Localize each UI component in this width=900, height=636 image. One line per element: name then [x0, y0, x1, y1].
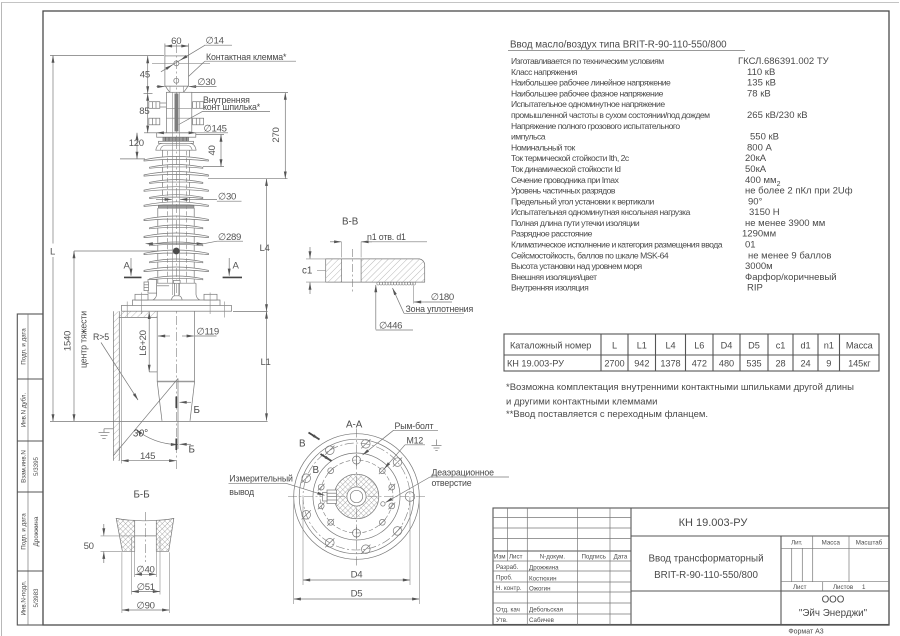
svg-text:промышленной частоты в сухом с: промышленной частоты в сухом состоянии/п…: [511, 110, 710, 120]
svg-text:L: L: [612, 341, 617, 351]
svg-text:R>5: R>5: [93, 332, 109, 342]
svg-text:3000м: 3000м: [745, 261, 773, 272]
svg-text:А-А: А-А: [346, 420, 363, 431]
svg-text:Ток динамической стойкости Id: Ток динамической стойкости Id: [511, 164, 621, 174]
svg-text:Изм: Изм: [494, 554, 506, 561]
svg-text:Изготавливается по техническим: Изготавливается по техническим условиям: [511, 56, 664, 66]
svg-text:Испытательное одноминутное нап: Испытательное одноминутное напряжение: [511, 99, 665, 109]
svg-text:5/3983: 5/3983: [33, 588, 40, 607]
svg-text:Высота установки над уровнем м: Высота установки над уровнем моря: [511, 261, 642, 271]
svg-text:50кА: 50кА: [745, 164, 767, 175]
svg-text:1: 1: [862, 584, 866, 591]
svg-text:∅119: ∅119: [197, 327, 219, 338]
svg-text:78 кВ: 78 кВ: [747, 88, 771, 99]
svg-text:Подп. и дата: Подп. и дата: [21, 513, 28, 550]
svg-text:L4: L4: [665, 341, 675, 351]
svg-text:*Возможна комплектация внутрен: *Возможна комплектация внутренними конта…: [506, 382, 854, 393]
svg-text:1290мм: 1290мм: [742, 229, 776, 240]
svg-text:Испытательная одноминутная кнс: Испытательная одноминутная кнсольная наг…: [511, 207, 691, 217]
svg-text:Формат А3: Формат А3: [788, 629, 823, 636]
svg-text:135 кВ: 135 кВ: [747, 78, 776, 89]
svg-text:∅90: ∅90: [137, 600, 155, 611]
svg-text:отверстие: отверстие: [432, 478, 472, 488]
svg-text:535: 535: [746, 359, 761, 369]
svg-text:1378: 1378: [660, 359, 680, 369]
svg-text:D5: D5: [748, 341, 760, 351]
svg-text:BRIT-R-90-110-550/800: BRIT-R-90-110-550/800: [654, 570, 758, 581]
svg-text:Фарфор/коричневый: Фарфор/коричневый: [745, 272, 837, 283]
svg-text:9: 9: [826, 359, 831, 369]
svg-text:28: 28: [775, 359, 785, 369]
svg-text:Климатическое исполнение и кат: Климатическое исполнение и категория раз…: [511, 240, 723, 250]
svg-text:Б: Б: [194, 405, 200, 416]
svg-text:∅40: ∅40: [136, 565, 154, 576]
svg-text:45: 45: [140, 70, 150, 81]
svg-text:L4: L4: [260, 243, 271, 254]
svg-text:не более 2 пКл при 2Uф: не более 2 пКл при 2Uф: [745, 186, 853, 197]
svg-text:145: 145: [140, 451, 155, 462]
svg-text:Лит.: Лит.: [791, 540, 803, 547]
svg-text:Инв.N-подл.: Инв.N-подл.: [21, 580, 28, 615]
svg-text:550 кВ: 550 кВ: [750, 132, 779, 143]
svg-text:Зона уплотнения: Зона уплотнения: [406, 304, 474, 314]
svg-text:Разраб.: Разраб.: [496, 564, 519, 571]
svg-text:942: 942: [634, 359, 649, 369]
svg-text:Взам.инв.N: Взам.инв.N: [21, 450, 28, 483]
svg-text:Полная длина пути утечки изоля: Полная длина пути утечки изоляции: [511, 218, 640, 228]
svg-text:01: 01: [745, 240, 756, 251]
svg-text:Наибольшее рабочее фазное напр: Наибольшее рабочее фазное напряжение: [511, 88, 664, 98]
svg-text:d1: d1: [800, 341, 810, 351]
svg-text:и другими контактными клеммами: и другими контактными клеммами: [506, 397, 657, 408]
svg-text:Класс напряжения: Класс напряжения: [511, 67, 578, 77]
svg-text:Контактная клемма*: Контактная клемма*: [206, 52, 287, 62]
svg-text:Дата: Дата: [614, 554, 628, 561]
svg-text:RIP: RIP: [747, 283, 763, 294]
svg-text:Масса: Масса: [822, 540, 841, 547]
svg-text:Сечение проводника при Imax: Сечение проводника при Imax: [511, 175, 620, 185]
svg-text:М12: М12: [407, 435, 424, 445]
svg-text:Масса: Масса: [846, 341, 874, 351]
svg-text:L1: L1: [261, 357, 271, 368]
svg-text:**Ввод поставляется с переход: **Ввод поставляется с переходным фланцем…: [506, 409, 708, 420]
svg-text:центр тяжести: центр тяжести: [79, 311, 89, 368]
svg-text:Масштаб: Масштаб: [856, 540, 883, 547]
svg-text:120: 120: [129, 138, 144, 149]
svg-text:480: 480: [719, 359, 734, 369]
svg-text:A: A: [124, 261, 131, 272]
svg-text:Б: Б: [189, 445, 195, 456]
svg-text:Разрядное расстояние: Разрядное расстояние: [511, 229, 593, 239]
svg-text:n1: n1: [824, 341, 834, 351]
svg-text:D4: D4: [721, 341, 733, 351]
svg-text:В: В: [313, 465, 320, 476]
svg-text:не менее 3900 мм: не менее 3900 мм: [745, 218, 825, 229]
svg-text:1540: 1540: [63, 331, 74, 351]
svg-text:Костюхин: Костюхин: [529, 576, 557, 583]
svg-text:85: 85: [139, 106, 149, 117]
svg-text:"Эйч Энерджи": "Эйч Энерджи": [799, 608, 868, 619]
svg-text:270: 270: [271, 127, 282, 142]
svg-text:265 кВ/230 кВ: 265 кВ/230 кВ: [747, 110, 808, 121]
svg-text:Н. контр.: Н. контр.: [496, 585, 522, 592]
svg-text:N-докум.: N-докум.: [540, 554, 566, 561]
svg-text:В: В: [299, 439, 306, 450]
svg-text:КН 19.003-РУ: КН 19.003-РУ: [507, 359, 564, 369]
svg-text:L6+20: L6+20: [138, 330, 149, 355]
svg-text:20кА: 20кА: [745, 153, 767, 164]
svg-text:Подп. и дата: Подп. и дата: [21, 328, 28, 365]
svg-text:50: 50: [84, 541, 94, 552]
svg-text:c1: c1: [302, 266, 312, 277]
svg-text:Внутренняя изоляция: Внутренняя изоляция: [511, 283, 589, 293]
svg-text:ГКСЛ.686391.002 ТУ: ГКСЛ.686391.002 ТУ: [738, 56, 830, 67]
svg-text:не менее 9 баллов: не менее 9 баллов: [748, 250, 831, 261]
svg-text:КН 19.003-РУ: КН 19.003-РУ: [679, 517, 749, 529]
svg-text:В-В: В-В: [342, 217, 359, 228]
svg-text:Утв.: Утв.: [496, 617, 508, 624]
svg-text:90°: 90°: [748, 196, 763, 207]
svg-text:вывод: вывод: [229, 487, 254, 497]
svg-text:L6: L6: [694, 341, 704, 351]
svg-text:L1: L1: [637, 341, 647, 351]
svg-text:Подпись: Подпись: [581, 554, 606, 561]
svg-text:Дебольская: Дебольская: [529, 607, 563, 614]
svg-text:Инв.N дубл.: Инв.N дубл.: [21, 393, 28, 428]
svg-text:D4: D4: [351, 570, 364, 581]
svg-text:Сейсмостойкость, баллов по шка: Сейсмостойкость, баллов по шкале MSK-64: [511, 250, 669, 260]
svg-text:Ток термической стойкости Ith,: Ток термической стойкости Ith, 2с: [511, 153, 630, 163]
svg-text:Напряжение полного грозового и: Напряжение полного грозового испытательн…: [511, 121, 680, 131]
svg-text:2700: 2700: [604, 359, 624, 369]
svg-text:Лист: Лист: [793, 584, 807, 591]
svg-text:800 А: 800 А: [747, 142, 772, 153]
svg-text:Лист: Лист: [509, 554, 523, 561]
svg-text:Уровень частичных разрядов: Уровень частичных разрядов: [511, 186, 616, 196]
svg-text:Ожогин: Ожогин: [529, 586, 551, 593]
svg-text:ООО: ООО: [822, 595, 845, 606]
svg-text:24: 24: [800, 359, 810, 369]
svg-text:472: 472: [692, 359, 707, 369]
svg-text:Каталожный номер: Каталожный номер: [510, 341, 591, 351]
svg-text:Измерительный: Измерительный: [229, 473, 293, 483]
svg-text:30°: 30°: [133, 429, 148, 440]
svg-text:40: 40: [207, 145, 218, 155]
svg-text:Листов: Листов: [833, 584, 854, 591]
svg-text:Дрожжина: Дрожжина: [33, 516, 40, 546]
svg-text:Наибольшее рабочее линейное на: Наибольшее рабочее линейное напряжение: [511, 78, 671, 88]
svg-text:Отд. кач: Отд. кач: [496, 607, 520, 614]
svg-text:∅14: ∅14: [206, 36, 225, 47]
svg-text:D5: D5: [351, 589, 363, 600]
svg-text:Б-Б: Б-Б: [134, 490, 150, 501]
svg-text:Сабичев: Сабичев: [529, 617, 555, 624]
svg-text:110 кВ: 110 кВ: [747, 67, 775, 78]
svg-text:Дрожжина: Дрожжина: [529, 565, 559, 572]
svg-text:c1: c1: [776, 341, 786, 351]
svg-text:145кг: 145кг: [848, 359, 871, 369]
svg-text:Ввод трансформаторный: Ввод трансформаторный: [648, 554, 763, 565]
svg-text:Внешняя изоляция/цвет: Внешняя изоляция/цвет: [511, 272, 597, 282]
svg-text:конт шпилька*: конт шпилька*: [203, 102, 261, 112]
svg-text:∅51: ∅51: [137, 582, 155, 593]
svg-text:n1 отв. d1: n1 отв. d1: [367, 232, 406, 242]
svg-text:3150 Н: 3150 Н: [749, 207, 780, 218]
svg-text:∅145: ∅145: [204, 123, 227, 134]
svg-text:A: A: [233, 261, 240, 272]
svg-text:5/3395: 5/3395: [33, 456, 40, 475]
svg-text:импульса: импульса: [511, 132, 546, 142]
svg-text:Рым-болт: Рым-болт: [395, 421, 434, 431]
svg-text:Ввод масло/воздух типа BRIT-R-: Ввод масло/воздух типа BRIT-R-90-110-550…: [510, 40, 727, 51]
svg-text:∅180: ∅180: [431, 292, 454, 303]
svg-text:Деаэрационное: Деаэрационное: [432, 467, 495, 477]
svg-text:Предельный угол установки к ве: Предельный угол установки к вертикали: [511, 196, 655, 206]
svg-text:Проб.: Проб.: [496, 575, 513, 582]
svg-text:Номинальный ток: Номинальный ток: [511, 142, 575, 152]
